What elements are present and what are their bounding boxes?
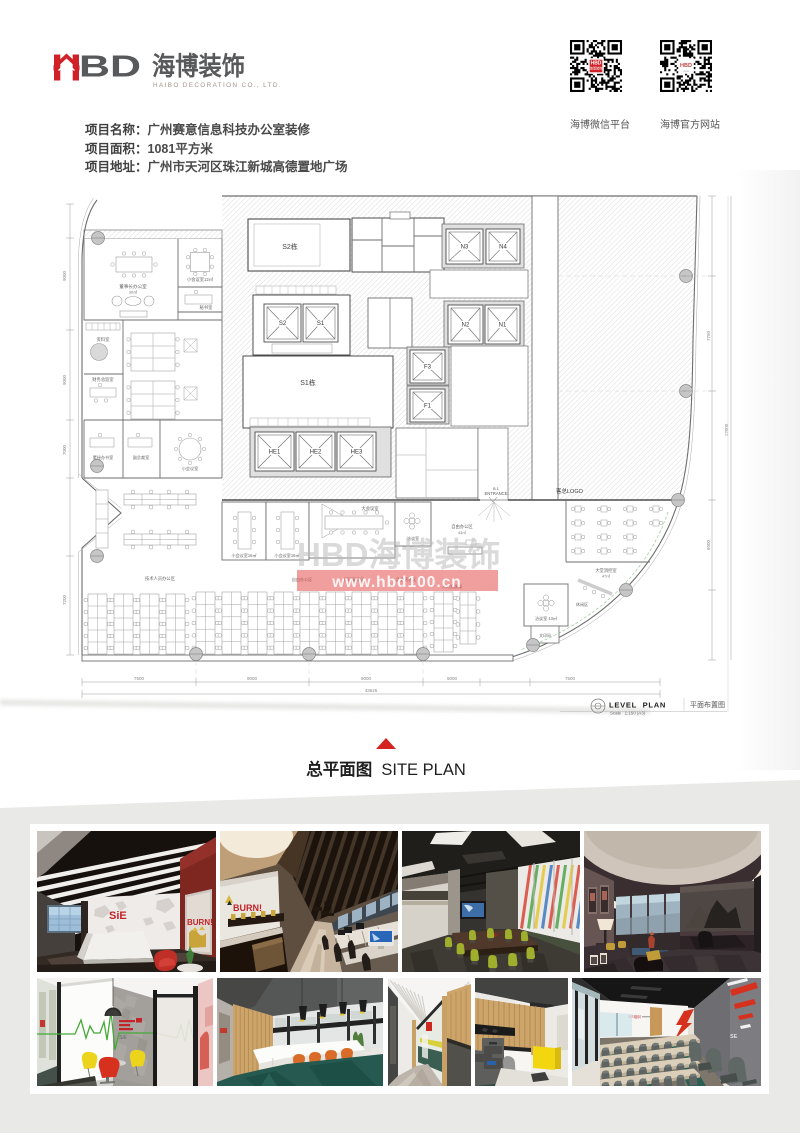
svg-text:7500: 7500 — [134, 676, 145, 681]
svg-text:财务总监室: 财务总监室 — [92, 376, 114, 383]
svg-text:HBD海博装饰: HBD海博装饰 — [297, 536, 501, 573]
svg-text:43㎡: 43㎡ — [458, 530, 466, 535]
svg-text:7200: 7200 — [62, 594, 67, 605]
svg-text:ENTRANCE: ENTRANCE — [484, 491, 507, 496]
svg-text:小会议室16㎡: 小会议室16㎡ — [231, 552, 256, 558]
svg-text:HE3: HE3 — [351, 450, 363, 456]
svg-text:47㎡: 47㎡ — [602, 574, 610, 579]
svg-text:HE1: HE1 — [269, 450, 281, 456]
svg-text:HE2: HE2 — [310, 450, 322, 456]
svg-text:BURN!: BURN! — [233, 903, 262, 913]
svg-text:N4: N4 — [499, 245, 507, 251]
svg-text:S1栋: S1栋 — [300, 378, 316, 387]
svg-text:客总LOGO: 客总LOGO — [556, 487, 584, 495]
svg-text:F3: F3 — [424, 365, 432, 371]
svg-text:www.hbd100.cn: www.hbd100.cn — [331, 574, 462, 591]
svg-text:9000: 9000 — [361, 676, 372, 681]
svg-text:30㎡: 30㎡ — [129, 289, 137, 295]
svg-text:F1: F1 — [424, 404, 432, 410]
svg-text:7750: 7750 — [706, 330, 711, 341]
svg-text:N2: N2 — [462, 323, 470, 329]
svg-text:洽谈室 13㎡: 洽谈室 13㎡ — [535, 615, 557, 621]
svg-text:秘书室: 秘书室 — [200, 304, 214, 311]
svg-text:5000: 5000 — [447, 676, 458, 681]
svg-text:董秘办书室: 董秘办书室 — [93, 454, 113, 460]
svg-text:SiE: SiE — [109, 910, 127, 922]
svg-text:大会议室: 大会议室 — [361, 505, 379, 512]
svg-text:资料室: 资料室 — [97, 336, 111, 343]
svg-text:LEVEL PLAN: LEVEL PLAN — [609, 701, 666, 710]
svg-text:9000: 9000 — [247, 676, 258, 681]
svg-text:小会议室: 小会议室 — [182, 465, 198, 471]
svg-text:7500: 7500 — [565, 676, 576, 681]
svg-text:9000: 9000 — [62, 270, 67, 281]
svg-text:43625: 43625 — [365, 688, 378, 693]
svg-text:自由办公区: 自由办公区 — [451, 523, 473, 530]
svg-text:BURN!: BURN! — [187, 918, 213, 927]
svg-text:小会议室12㎡: 小会议室12㎡ — [187, 276, 214, 283]
svg-text:S2: S2 — [279, 321, 287, 327]
svg-text:6000: 6000 — [706, 539, 711, 550]
svg-text:小会议室16㎡: 小会议室16㎡ — [274, 552, 299, 558]
svg-text:文印间: 文印间 — [539, 633, 551, 638]
svg-text:S2栋: S2栋 — [282, 242, 298, 251]
svg-text:7000: 7000 — [62, 444, 67, 455]
svg-text:技术人员办公区: 技术人员办公区 — [145, 575, 176, 582]
svg-text:N3: N3 — [461, 245, 469, 251]
svg-text:副总裁室: 副总裁室 — [133, 454, 149, 460]
svg-text:SiE: SiE — [119, 1035, 127, 1041]
svg-text:S1: S1 — [317, 321, 325, 327]
svg-text:SE: SE — [730, 1034, 738, 1040]
svg-text:N1: N1 — [499, 323, 507, 329]
svg-text:大堂消控室: 大堂消控室 — [595, 567, 617, 574]
svg-text:9000: 9000 — [62, 374, 67, 385]
svg-text:休闲区: 休闲区 — [576, 601, 588, 607]
svg-text:平面布置图: 平面布置图 — [690, 700, 725, 709]
